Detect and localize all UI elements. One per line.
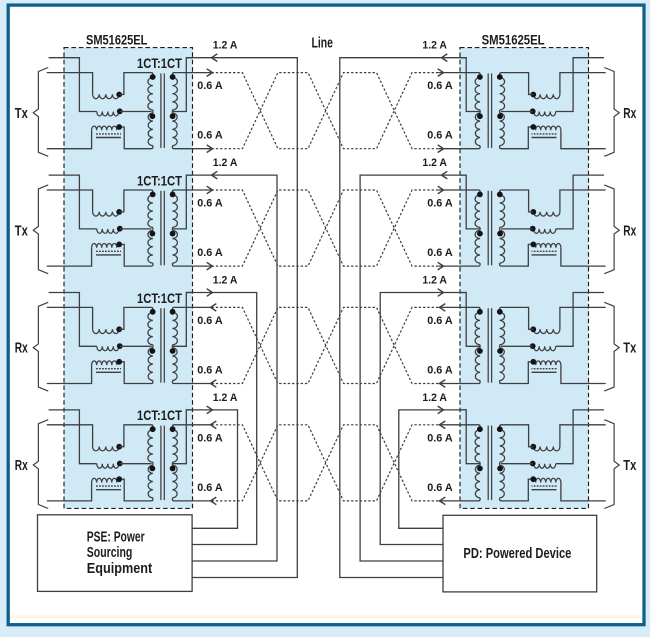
svg-text:1CT:1CT: 1CT:1CT xyxy=(137,172,182,188)
svg-text:Tx: Tx xyxy=(15,105,28,122)
svg-text:1.2 A: 1.2 A xyxy=(213,275,238,287)
svg-text:0.6 A: 0.6 A xyxy=(197,80,223,92)
svg-text:0.6 A: 0.6 A xyxy=(197,247,223,259)
svg-text:1.2 A: 1.2 A xyxy=(422,40,447,52)
svg-text:0.6 A: 0.6 A xyxy=(197,198,223,210)
svg-text:Tx: Tx xyxy=(623,457,636,474)
svg-text:1.2 A: 1.2 A xyxy=(213,157,238,169)
svg-text:1.2 A: 1.2 A xyxy=(213,40,238,52)
svg-text:0.6 A: 0.6 A xyxy=(427,365,453,377)
svg-text:0.6 A: 0.6 A xyxy=(427,198,453,210)
svg-text:1.2 A: 1.2 A xyxy=(422,157,447,169)
svg-text:1.2 A: 1.2 A xyxy=(213,392,238,404)
svg-text:0.6 A: 0.6 A xyxy=(197,130,223,142)
svg-text:0.6 A: 0.6 A xyxy=(197,432,223,444)
svg-text:0.6 A: 0.6 A xyxy=(427,130,453,142)
svg-text:1CT:1CT: 1CT:1CT xyxy=(137,407,182,423)
svg-text:1CT:1CT: 1CT:1CT xyxy=(137,55,182,71)
svg-text:0.6 A: 0.6 A xyxy=(197,365,223,377)
svg-text:Equipment: Equipment xyxy=(87,561,153,577)
svg-text:PD: Powered Device: PD: Powered Device xyxy=(463,546,571,562)
svg-text:Rx: Rx xyxy=(15,457,28,474)
svg-text:Sourcing: Sourcing xyxy=(87,545,133,561)
svg-text:Rx: Rx xyxy=(623,222,636,239)
svg-text:Rx: Rx xyxy=(623,105,636,122)
svg-text:PSE: Power: PSE: Power xyxy=(87,530,145,546)
svg-text:SM51625EL: SM51625EL xyxy=(86,31,148,47)
svg-text:1CT:1CT: 1CT:1CT xyxy=(137,290,182,306)
svg-text:Tx: Tx xyxy=(15,222,28,239)
svg-text:0.6 A: 0.6 A xyxy=(427,315,453,327)
svg-text:0.6 A: 0.6 A xyxy=(427,247,453,259)
svg-text:Rx: Rx xyxy=(15,340,28,357)
svg-text:Line: Line xyxy=(311,35,333,52)
svg-text:0.6 A: 0.6 A xyxy=(427,80,453,92)
svg-text:0.6 A: 0.6 A xyxy=(427,432,453,444)
svg-text:0.6 A: 0.6 A xyxy=(197,315,223,327)
svg-text:1.2 A: 1.2 A xyxy=(422,392,447,404)
svg-text:Tx: Tx xyxy=(623,340,636,357)
svg-text:1.2 A: 1.2 A xyxy=(422,275,447,287)
svg-text:SM51625EL: SM51625EL xyxy=(482,31,545,47)
svg-text:0.6 A: 0.6 A xyxy=(427,482,453,494)
svg-text:0.6 A: 0.6 A xyxy=(197,482,223,494)
